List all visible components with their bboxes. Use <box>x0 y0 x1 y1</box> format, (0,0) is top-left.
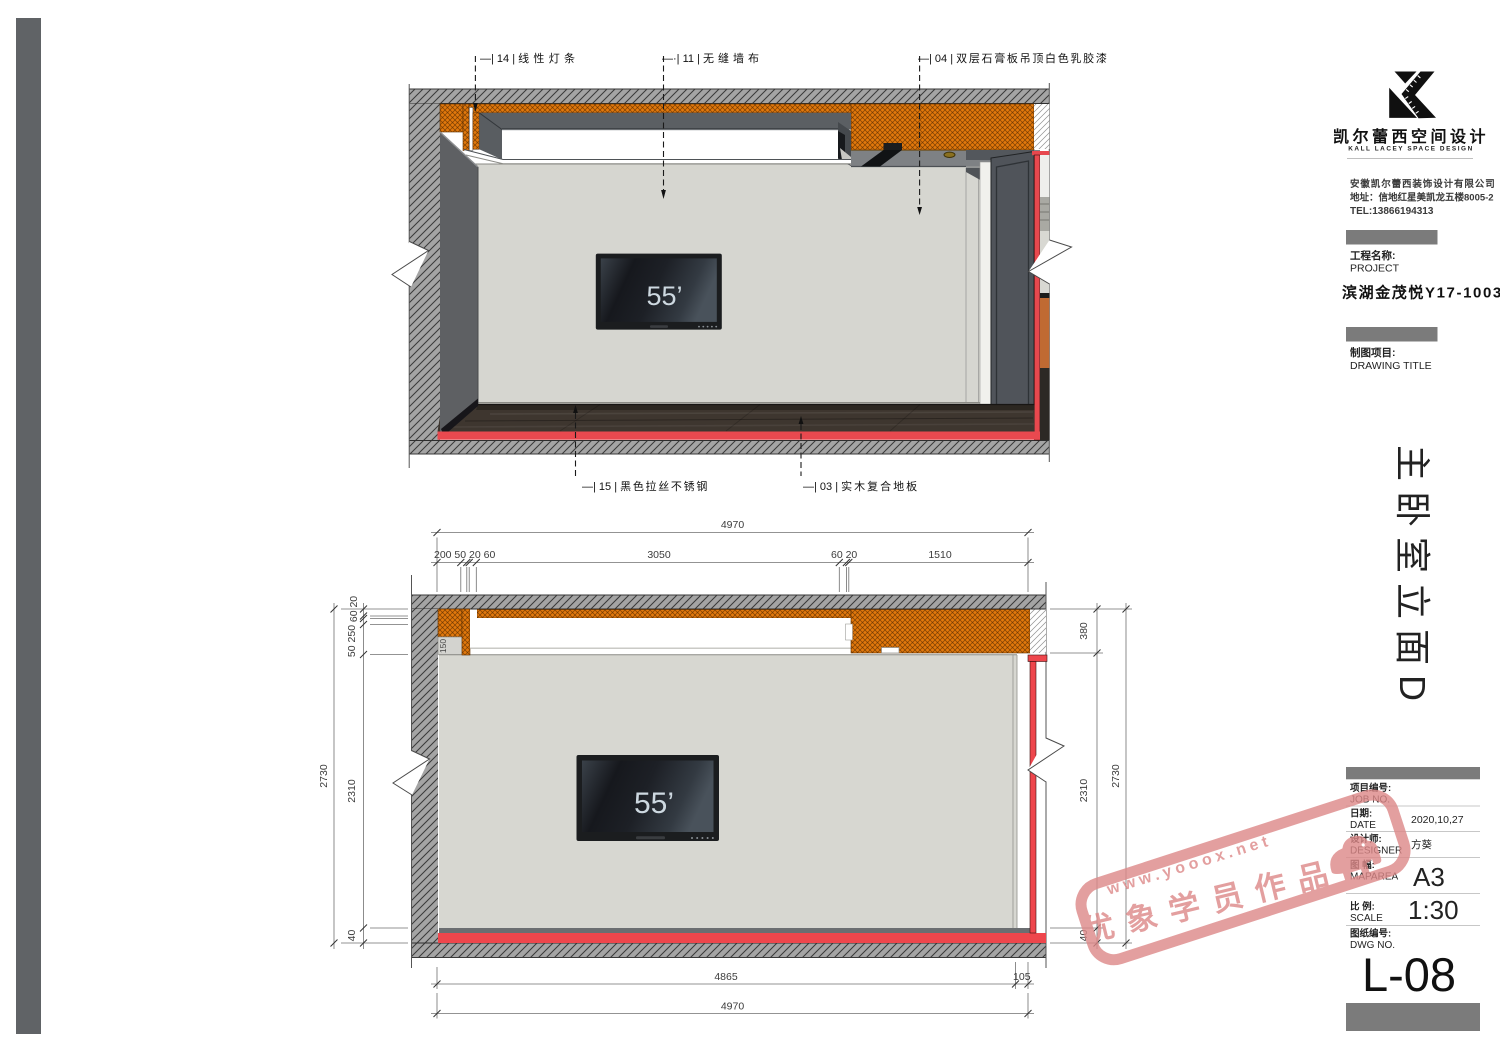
svg-text:40: 40 <box>346 930 358 942</box>
svg-text:比 例:: 比 例: <box>1350 901 1375 913</box>
svg-text:—| 03 | 实木复合地板: —| 03 | 实木复合地板 <box>803 479 919 493</box>
svg-text:KALL LACEY SPACE DESIGN: KALL LACEY SPACE DESIGN <box>1348 146 1474 153</box>
svg-text:SCALE: SCALE <box>1350 913 1383 924</box>
svg-text:滨湖金茂悦Y17-1003室: 滨湖金茂悦Y17-1003室 <box>1342 284 1500 302</box>
svg-text:图纸编号:: 图纸编号: <box>1350 928 1391 940</box>
svg-text:380: 380 <box>1078 622 1090 640</box>
svg-text:55’: 55’ <box>646 281 682 311</box>
svg-text:2310: 2310 <box>1078 779 1090 803</box>
svg-text:—| 14 | 线性灯条: —| 14 | 线性灯条 <box>480 51 579 65</box>
svg-text:DATE: DATE <box>1350 820 1376 831</box>
svg-text:A3: A3 <box>1413 862 1445 892</box>
svg-text:2020,10,27: 2020,10,27 <box>1411 814 1464 826</box>
svg-text:2310: 2310 <box>346 779 358 803</box>
svg-text:—·| 11 | 无缝墙布: —·| 11 | 无缝墙布 <box>662 51 763 65</box>
svg-text:4970: 4970 <box>721 519 745 531</box>
svg-text:—| 15 | 黑色拉丝不锈钢: —| 15 | 黑色拉丝不锈钢 <box>582 479 709 493</box>
svg-text:1510: 1510 <box>928 549 952 561</box>
svg-text:200 50 20 60: 200 50 20 60 <box>434 549 495 561</box>
svg-text:4970: 4970 <box>721 1001 745 1013</box>
svg-text:地址：信地红星美凯龙五楼8005-2: 地址：信地红星美凯龙五楼8005-2 <box>1350 192 1494 204</box>
svg-text:DRAWING TITLE: DRAWING TITLE <box>1350 360 1432 372</box>
svg-text:L-08: L-08 <box>1362 948 1456 1001</box>
svg-text:4865: 4865 <box>714 971 738 983</box>
svg-text:1:30: 1:30 <box>1408 895 1459 925</box>
svg-text:凯尔蕾西空间设计: 凯尔蕾西空间设计 <box>1333 127 1489 146</box>
svg-text:50 250: 50 250 <box>346 625 358 657</box>
svg-text:工程名称:: 工程名称: <box>1350 249 1396 262</box>
svg-text:3050: 3050 <box>647 549 671 561</box>
svg-text:55’: 55’ <box>634 787 674 820</box>
svg-text:60 20: 60 20 <box>831 549 857 561</box>
svg-text:—| 04 | 双层石膏板吊顶白色乳胶漆: —| 04 | 双层石膏板吊顶白色乳胶漆 <box>918 51 1109 65</box>
svg-text:TEL:13866194313: TEL:13866194313 <box>1350 206 1434 217</box>
svg-text:日期:: 日期: <box>1350 808 1372 820</box>
svg-text:150: 150 <box>438 639 448 653</box>
svg-text:60 20: 60 20 <box>348 596 360 622</box>
svg-text:2730: 2730 <box>318 764 330 788</box>
svg-text:方葵: 方葵 <box>1411 838 1433 851</box>
svg-text:PROJECT: PROJECT <box>1350 263 1400 275</box>
svg-text:2730: 2730 <box>1110 764 1122 788</box>
svg-text:105: 105 <box>1013 971 1031 983</box>
svg-text:主卧室立面D: 主卧室立面D <box>1392 445 1433 711</box>
svg-text:安徽凯尔蕾西装饰设计有限公司: 安徽凯尔蕾西装饰设计有限公司 <box>1350 178 1496 190</box>
svg-text:制图项目:: 制图项目: <box>1350 346 1396 359</box>
